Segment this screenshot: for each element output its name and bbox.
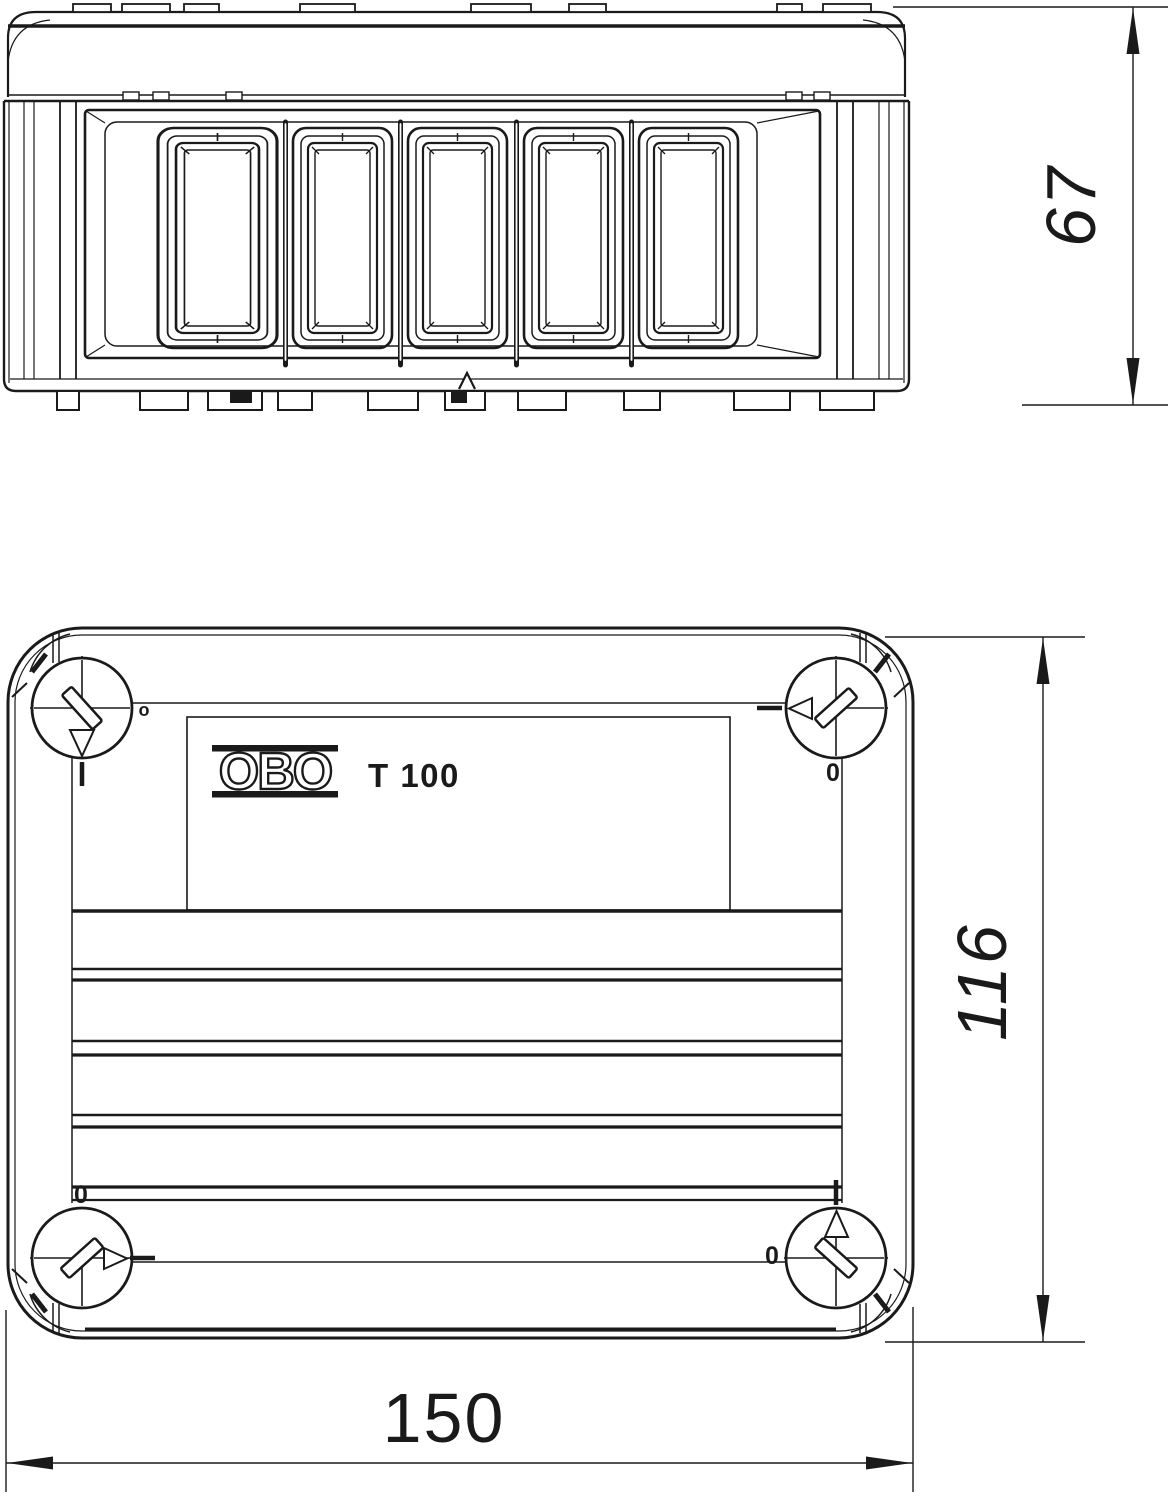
technical-drawing-page: 67 <box>0 0 1171 1500</box>
zero-marker: 0 <box>826 759 840 787</box>
lid-outline <box>8 628 913 1338</box>
obo-logo: OBO <box>212 743 338 801</box>
seam-tabs <box>123 92 830 100</box>
dimension-side-height: 67 <box>893 7 1168 405</box>
lid-top-tabs <box>73 4 871 12</box>
zero-marker: 0 <box>74 1181 88 1209</box>
arrowhead-down-icon <box>1037 1295 1050 1341</box>
dimension-value-150: 150 <box>383 1379 506 1457</box>
knockout-panel <box>85 110 820 365</box>
plan-view: OBO T 100 o <box>8 628 913 1338</box>
knockout-dividers <box>286 122 632 365</box>
arrowhead-down-icon <box>1127 358 1140 404</box>
side-view <box>4 4 909 410</box>
dimension-plan-height: 116 <box>885 637 1085 1342</box>
dimension-plan-width: 150 <box>6 1307 913 1492</box>
knockout-3 <box>408 128 507 348</box>
dimension-value-116: 116 <box>943 923 1021 1041</box>
brand-text: OBO <box>219 743 332 801</box>
zero-marker: o <box>139 700 150 720</box>
product-label: OBO T 100 <box>187 717 730 910</box>
side-view-lid <box>4 4 909 101</box>
knockout-2 <box>293 128 392 348</box>
zero-marker: 0 <box>765 1242 779 1270</box>
corner-details <box>12 633 909 1333</box>
knockout-5 <box>639 128 738 348</box>
dimension-value-67: 67 <box>1032 164 1110 247</box>
junction-box-dimension-drawing: 67 <box>0 0 1171 1500</box>
corner-screw-top-right: 0 <box>757 656 888 787</box>
bottom-feet <box>57 391 874 410</box>
arrowhead-left-icon <box>7 1457 53 1470</box>
arrowhead-up-icon <box>1037 638 1050 684</box>
arrowhead-right-icon <box>866 1457 912 1470</box>
knockout-1 <box>158 128 277 348</box>
mould-caret-marker <box>459 373 475 389</box>
knockout-4 <box>524 128 623 348</box>
model-text: T 100 <box>368 757 460 794</box>
lid-ribs <box>72 911 842 1329</box>
corner-screw-top-left: o <box>30 656 150 786</box>
arrowhead-up-icon <box>1127 8 1140 54</box>
